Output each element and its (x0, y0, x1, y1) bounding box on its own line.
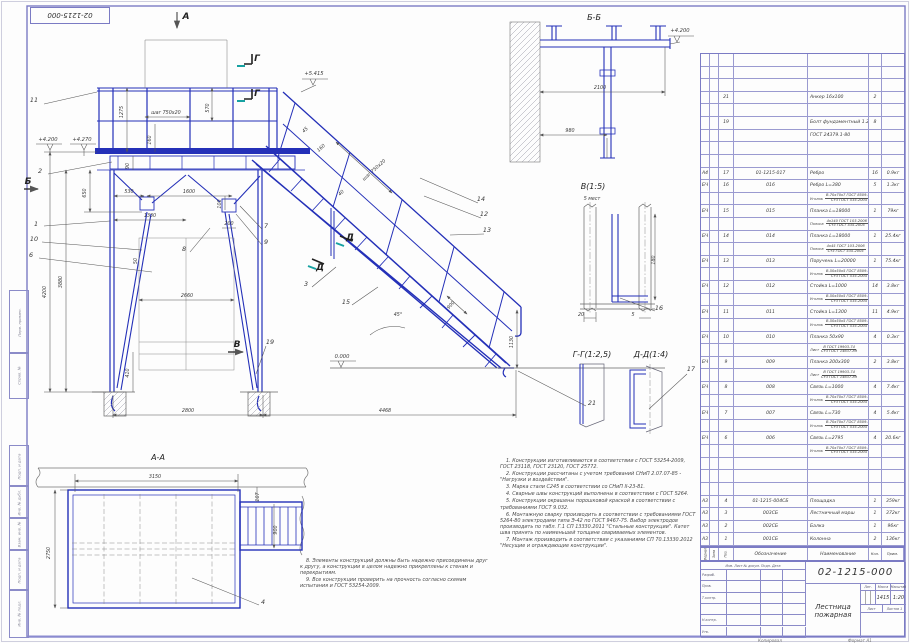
spec-cell (869, 445, 882, 457)
note-line: 5. Конструкции окрашены порошковой краск… (500, 498, 696, 510)
doc-title: Лестница пожарная (806, 603, 860, 619)
sheet-label: Лист (861, 605, 883, 613)
title-block-empty-cell (761, 581, 783, 592)
spec-cell (869, 130, 882, 142)
drawing-label: 6 (29, 251, 33, 259)
spec-cell (710, 294, 719, 306)
spec-cell (869, 218, 882, 230)
drawing-label: 3 (304, 280, 308, 288)
drawing-label: А (182, 12, 190, 22)
spec-row: А31001СБКолонна2136кг (701, 533, 904, 546)
drawing-label: 7 (264, 222, 268, 230)
drawing-label: Д (315, 263, 324, 273)
spec-cell: БЧ (701, 256, 710, 268)
spec-cell (710, 395, 719, 407)
spec-cell (710, 319, 719, 331)
spec-cell: 6 (719, 432, 734, 444)
drawing-label: 160 (147, 135, 153, 144)
drawing-label: 980 (565, 128, 574, 134)
spec-cell: 4 (869, 407, 882, 419)
title-block-role: Утв. (701, 627, 727, 638)
main-view-details (92, 40, 665, 416)
spec-cell (710, 496, 719, 508)
spec-row: БЧ15015Планка L=18000179кг (701, 205, 904, 218)
spec-cell (869, 67, 882, 79)
spec-cell: 11 (719, 306, 734, 318)
spec-material-cell: Полоса4х45 ГОСТ 103-2006Ст3 ГОСТ 535-200… (808, 243, 869, 255)
spec-row: БЧ10010Планка 50х9040.3кг (701, 332, 904, 345)
spec-row (701, 155, 904, 168)
note-line: 9. Все конструкции проверить на прочност… (300, 577, 492, 589)
spec-cell: 2 (869, 533, 882, 545)
spec-cell: 12 (719, 281, 734, 293)
spec-cell (710, 205, 719, 217)
drawing-label: 13 (483, 226, 491, 234)
drawing-label: 8 (182, 245, 186, 253)
spec-cell: БЧ (701, 306, 710, 318)
spec-row: БЧ12012Стойка L=1000143.8кг (701, 281, 904, 294)
spec-row (701, 470, 904, 483)
drawing-label: 4468 (379, 408, 391, 414)
spec-material-cell: УголокВ-50х50х5 ГОСТ 8509-93Ст3 ГОСТ 535… (808, 319, 869, 331)
spec-cell (734, 344, 808, 356)
spec-name-cell: Ребро L=380 (808, 180, 869, 192)
drawing-label: +5.415 (304, 71, 324, 77)
spec-row: 19Болт фундаментный 1.2М20х4008 (701, 117, 904, 130)
spec-name-cell: Связь L=2795 (808, 432, 869, 444)
spec-cell (734, 319, 808, 331)
spec-row (701, 142, 904, 155)
mass-value: 1415 (876, 591, 891, 605)
spec-row (701, 54, 904, 67)
spec-cell (701, 243, 710, 255)
lit-value (861, 591, 876, 605)
spec-cell: А3 (701, 533, 710, 545)
spec-cell: 1.3кг (882, 180, 904, 192)
spec-cell (701, 130, 710, 142)
title-block-role (701, 604, 727, 615)
spec-col-note: Прим. (882, 548, 904, 560)
spec-cell (710, 458, 719, 470)
spec-row: БЧ8008Связь L=100047.4кг (701, 382, 904, 395)
drawing-label: 2660 (181, 293, 193, 299)
spec-cell: 4 (869, 332, 882, 344)
spec-cell (701, 445, 710, 457)
spec-cell (734, 458, 808, 470)
margin-box: Подп. и дата (9, 445, 29, 487)
spec-cell: 008 (734, 382, 808, 394)
title-block-empty-cell (727, 615, 761, 626)
title-block-empty-cell (783, 570, 806, 581)
spec-cell (710, 508, 719, 520)
spec-cell: 11 (869, 306, 882, 318)
spec-cell (734, 92, 808, 104)
lit-label: Лит. (861, 584, 876, 591)
spec-cell (719, 243, 734, 255)
drawing-label: А-А (150, 453, 165, 462)
title-block-empty-cell (727, 581, 761, 592)
note-line: 8. Элементы конструкций должны быть наде… (300, 558, 492, 576)
spec-name-cell: Поручень L=20000 (808, 256, 869, 268)
spec-cell (701, 92, 710, 104)
spec-cell (882, 104, 904, 116)
drawing-label: В (234, 340, 241, 350)
drawing-label: 19 (266, 338, 274, 346)
spec-cell (710, 130, 719, 142)
spec-row: БЧ13013Поручень L=20000175.4кг (701, 256, 904, 269)
spec-cell: 0.3кг (882, 332, 904, 344)
drawing-label: 50 (133, 258, 139, 264)
spec-cell (882, 268, 904, 280)
spec-cell (808, 142, 869, 154)
spec-cell: 5.4кг (882, 407, 904, 419)
drawing-label: Г (254, 54, 261, 64)
title-block-empty-cell (761, 615, 783, 626)
spec-cell (710, 256, 719, 268)
drawing-label: В(1:5) (581, 182, 606, 191)
spec-col-pos: Поз. (724, 550, 728, 557)
spec-name-cell: Планка L=18000 (808, 205, 869, 217)
spec-row: БЧ16016Ребро L=38051.3кг (701, 180, 904, 193)
spec-cell: 21 (719, 92, 734, 104)
mass-label: Масса (876, 584, 891, 591)
spec-cell: 003СБ (734, 508, 808, 520)
spec-cell (869, 395, 882, 407)
spec-cell: 1 (719, 533, 734, 545)
title-block-empty-cell (761, 593, 783, 604)
spec-cell (710, 407, 719, 419)
spec-cell (869, 243, 882, 255)
drawing-label: 1275 (119, 106, 125, 118)
spec-cell (869, 458, 882, 470)
margin-box: Подп. и дата (9, 549, 29, 591)
spec-cell (710, 281, 719, 293)
spec-cell: 16 (719, 180, 734, 192)
spec-cell (719, 142, 734, 154)
spec-cell (734, 104, 808, 116)
spec-name-cell: Связь L=1000 (808, 382, 869, 394)
spec-cell (701, 218, 710, 230)
spec-cell (710, 470, 719, 482)
drawing-label: шаг 750х20 (361, 158, 387, 182)
spec-cell (719, 218, 734, 230)
spec-cell (869, 470, 882, 482)
drawing-label: 20 (578, 312, 584, 318)
drawing-label: +4.200 (38, 137, 58, 143)
spec-col-format: Формат (703, 548, 707, 560)
spec-material-cell: УголокВ-70х70х7 ГОСТ 8509-93Ст3 ГОСТ 535… (808, 193, 869, 205)
spec-cell (808, 67, 869, 79)
drawing-label: 107 (255, 492, 261, 501)
spec-cell (882, 79, 904, 91)
spec-cell (734, 54, 808, 66)
drawing-label: 15 (342, 298, 350, 306)
spec-cell (869, 294, 882, 306)
spec-cell: 9 (719, 357, 734, 369)
title-block-empty-cell (783, 615, 806, 626)
spec-cell (701, 117, 710, 129)
spec-cell: 3 (719, 508, 734, 520)
spec-cell (710, 193, 719, 205)
note-line: 3. Марка стали С245 в соответствии со СН… (500, 484, 696, 490)
spec-cell (719, 104, 734, 116)
spec-cell (701, 344, 710, 356)
title-block-empty-cell (783, 593, 806, 604)
spec-row: А3401-1215-004СБПлощадка1359кг (701, 496, 904, 509)
spec-cell (882, 155, 904, 167)
spec-cell (869, 54, 882, 66)
title-block-header-row: Изм. Лист № докум. Подп. Дата (701, 562, 806, 570)
spec-cell: 5 (869, 180, 882, 192)
spec-cell (710, 54, 719, 66)
spec-cell (701, 319, 710, 331)
view-gg (580, 364, 604, 427)
spec-cell (719, 445, 734, 457)
spec-cell (882, 420, 904, 432)
spec-cell: 1 (869, 521, 882, 533)
title-block-empty-cell (783, 581, 806, 592)
spec-cell (710, 306, 719, 318)
spec-cell: 25.4кг (882, 231, 904, 243)
spec-cell (710, 445, 719, 457)
spec-row: УголокВ-50х50х5 ГОСТ 8509-93Ст3 ГОСТ 535… (701, 268, 904, 281)
spec-cell: 17 (719, 168, 734, 180)
spec-row: УголокВ-70х70х7 ГОСТ 8509-93Ст3 ГОСТ 535… (701, 445, 904, 458)
spec-cell (701, 104, 710, 116)
spec-cell (710, 155, 719, 167)
spec-name-cell: Связь L=730 (808, 407, 869, 419)
spec-cell: БЧ (701, 231, 710, 243)
spec-cell (719, 67, 734, 79)
spec-cell: 8 (719, 382, 734, 394)
spec-cell (710, 67, 719, 79)
drawing-label: 2 (38, 167, 42, 175)
spec-cell: А3 (701, 496, 710, 508)
spec-cell (719, 483, 734, 495)
spec-cell (719, 344, 734, 356)
drawing-label: 100 (217, 199, 223, 208)
spec-col-designation: Обозначение (734, 548, 808, 560)
spec-cell (701, 67, 710, 79)
spec-cell (882, 470, 904, 482)
drawing-label: Б (25, 177, 32, 187)
spec-cell (701, 142, 710, 154)
spec-cell (882, 193, 904, 205)
spec-cell (710, 180, 719, 192)
spec-cell (719, 155, 734, 167)
drawing-label: +4.200 (670, 28, 690, 34)
spec-cell: БЧ (701, 432, 710, 444)
spec-material-cell: ЛистВ ГОСТ 19903-74Ст3 ГОСТ 14637-89 (808, 369, 869, 381)
spec-cell: 20.6кг (882, 432, 904, 444)
spec-cell (734, 155, 808, 167)
drawing-label: 1 (34, 220, 38, 228)
spec-cell (882, 67, 904, 79)
spec-name-cell: Лестничный марш (808, 508, 869, 520)
drawing-label: Д (345, 233, 354, 243)
spec-cell (808, 54, 869, 66)
spec-cell (701, 79, 710, 91)
spec-name-cell: Стойка L=1300 (808, 306, 869, 318)
spec-material-cell: УголокВ-70х70х7 ГОСТ 8509-93Ст3 ГОСТ 535… (808, 420, 869, 432)
spec-cell (869, 344, 882, 356)
spec-cell: 16 (869, 168, 882, 180)
specification-header: Формат Зона Поз. Обозначение Наименовани… (700, 547, 905, 561)
spec-row: УголокВ-70х70х7 ГОСТ 8509-93Ст3 ГОСТ 535… (701, 420, 904, 433)
spec-col-name: Наименование (808, 548, 869, 560)
spec-cell (808, 458, 869, 470)
drawing-label: 4200 (42, 286, 48, 298)
notes-right: 1. Конструкции изготавливаются в соответ… (500, 458, 696, 550)
spec-cell (882, 142, 904, 154)
spec-cell (701, 420, 710, 432)
spec-name-cell: Колонна (808, 533, 869, 545)
spec-cell (734, 470, 808, 482)
spec-row: БЧ9009Планка 200х30023.8кг (701, 357, 904, 370)
corner-stamp: 02-1215-000 (30, 7, 110, 24)
margin-box: Инв. № дубл. (9, 485, 29, 519)
spec-cell (710, 483, 719, 495)
spec-cell (869, 155, 882, 167)
spec-cell (808, 155, 869, 167)
spec-cell: 96кг (882, 521, 904, 533)
spec-cell: БЧ (701, 332, 710, 344)
spec-row: БЧ14014Планка L=18000125.4кг (701, 231, 904, 244)
spec-name-cell: Болт фундаментный 1.2М20х400 (808, 117, 869, 129)
title-block-role: Пров. (701, 581, 727, 592)
spec-cell (710, 168, 719, 180)
spec-material-cell: УголокВ-50х50х5 ГОСТ 8509-93Ст3 ГОСТ 535… (808, 294, 869, 306)
spec-cell: 359кг (882, 496, 904, 508)
scale-label: Масштаб (891, 584, 906, 591)
drawing-label: 5 мест (584, 196, 601, 202)
plan-aa (36, 468, 308, 608)
specification-table: 21Анкер 16х100219Болт фундаментный 1.2М2… (700, 53, 905, 547)
spec-cell (710, 142, 719, 154)
note-line: 7. Монтаж производить в соответствии с у… (500, 537, 696, 549)
spec-row (701, 67, 904, 80)
spec-row: ЛистВ ГОСТ 19903-74Ст3 ГОСТ 14637-89 (701, 369, 904, 382)
spec-row: А41701-1215-017Ребро160.9кг (701, 168, 904, 181)
spec-cell: 10 (719, 332, 734, 344)
spec-cell (882, 483, 904, 495)
spec-name-cell: Планка L=18000 (808, 231, 869, 243)
drawing-label: 12 (480, 210, 488, 218)
title-block: Изм. Лист № докум. Подп. Дата Разраб.Про… (700, 561, 905, 637)
org-cell (861, 613, 906, 638)
spec-cell: 009 (734, 357, 808, 369)
spec-row: Полоса4х45 ГОСТ 103-2006Ст3 ГОСТ 535-200… (701, 243, 904, 256)
spec-cell: 012 (734, 281, 808, 293)
spec-row: А33003СБЛестничный марш1372кг (701, 508, 904, 521)
spec-cell: А3 (701, 521, 710, 533)
spec-cell (701, 193, 710, 205)
spec-cell (734, 193, 808, 205)
spec-cell (719, 294, 734, 306)
spec-cell (719, 79, 734, 91)
spec-cell: 4 (869, 382, 882, 394)
spec-cell (734, 445, 808, 457)
spec-cell (710, 420, 719, 432)
spec-cell (734, 369, 808, 381)
spec-cell (719, 369, 734, 381)
spec-cell (701, 268, 710, 280)
spec-cell (734, 117, 808, 129)
spec-cell (719, 395, 734, 407)
spec-cell (869, 369, 882, 381)
drawing-label: 14 (477, 195, 485, 203)
spec-cell: 13 (719, 256, 734, 268)
spec-col-qty: Кол. (869, 548, 882, 560)
title-block-role: Н.контр. (701, 615, 727, 626)
spec-cell (734, 243, 808, 255)
drawing-label: 10 (30, 235, 38, 243)
spec-cell (869, 483, 882, 495)
spec-cell: 014 (734, 231, 808, 243)
spec-cell: 01-1215-004СБ (734, 496, 808, 508)
spec-cell: 3.8кг (882, 357, 904, 369)
margin-box: Инв. № подл. (9, 589, 29, 638)
spec-cell: 3.8кг (882, 281, 904, 293)
spec-cell: 2 (869, 92, 882, 104)
spec-cell (701, 369, 710, 381)
spec-cell (808, 79, 869, 91)
scale-value: 1:20 (891, 591, 906, 605)
title-block-empty-cell (761, 627, 783, 638)
spec-row: БЧ6006Связь L=2795420.6кг (701, 432, 904, 445)
drawing-label: 4 (261, 598, 265, 606)
spec-cell: 7.4кг (882, 382, 904, 394)
spec-cell (734, 294, 808, 306)
spec-cell: 4.9кг (882, 306, 904, 318)
spec-cell (710, 231, 719, 243)
spec-cell: 2 (869, 357, 882, 369)
drawing-label: 3150 (149, 474, 161, 480)
spec-row: УголокВ-70х70х7 ГОСТ 8509-93Ст3 ГОСТ 535… (701, 193, 904, 206)
drawing-label: 900 (446, 300, 457, 311)
spec-cell (710, 243, 719, 255)
spec-cell: 1 (869, 508, 882, 520)
spec-cell (719, 458, 734, 470)
spec-cell: БЧ (701, 382, 710, 394)
drawing-label: 3880 (58, 276, 64, 288)
spec-cell: 75.4кг (882, 256, 904, 268)
title-block-empty-cell (727, 593, 761, 604)
spec-row: БЧ7007Связь L=73045.4кг (701, 407, 904, 420)
spec-cell (882, 294, 904, 306)
spec-cell (701, 483, 710, 495)
spec-cell (710, 382, 719, 394)
spec-cell (719, 54, 734, 66)
spec-cell (710, 369, 719, 381)
spec-cell: 1 (869, 496, 882, 508)
spec-cell (701, 395, 710, 407)
spec-cell: 15 (719, 205, 734, 217)
spec-cell: 372кг (882, 508, 904, 520)
spec-cell: 015 (734, 205, 808, 217)
spec-cell: БЧ (701, 281, 710, 293)
spec-cell (719, 130, 734, 142)
spec-cell (869, 420, 882, 432)
margin-box: Перв. примен. (9, 290, 29, 354)
spec-cell (701, 458, 710, 470)
title-block-empty-cell (783, 627, 806, 638)
spec-cell (869, 268, 882, 280)
drawing-label: 530 (124, 189, 133, 195)
spec-row: УголокВ-70х70х7 ГОСТ 8509-93Ст3 ГОСТ 535… (701, 395, 904, 408)
spec-cell (701, 155, 710, 167)
spec-cell: БЧ (701, 357, 710, 369)
